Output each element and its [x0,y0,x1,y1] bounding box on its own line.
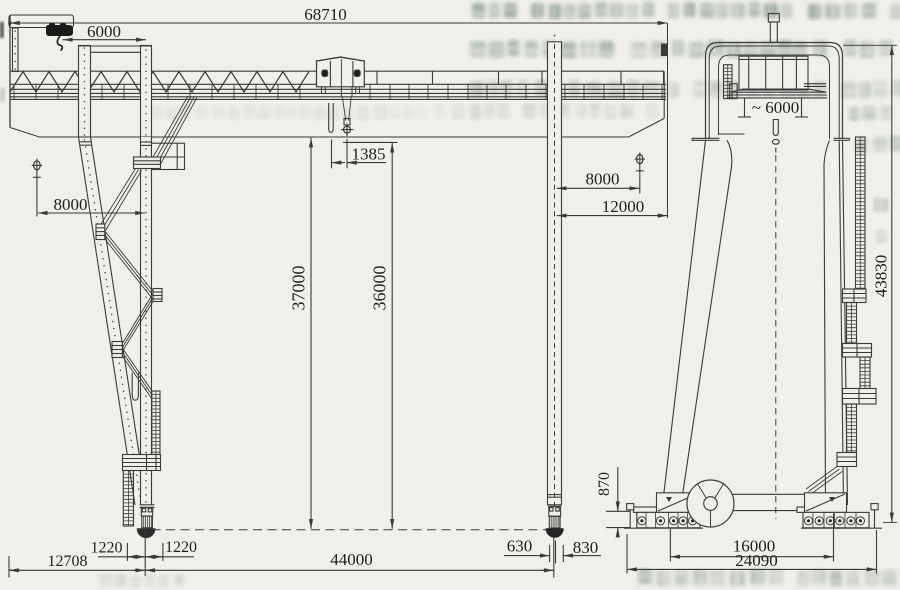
svg-text:12708: 12708 [48,553,88,570]
svg-text:6000: 6000 [87,22,121,41]
svg-text:~ 6000: ~ 6000 [752,98,799,117]
svg-text:36000: 36000 [370,266,390,311]
svg-text:43830: 43830 [872,255,891,298]
svg-text:37000: 37000 [289,266,309,311]
svg-text:24090: 24090 [735,551,778,570]
svg-text:1385: 1385 [352,145,386,164]
svg-text:8000: 8000 [54,195,88,214]
svg-text:630: 630 [507,536,533,555]
svg-text:12000: 12000 [602,197,645,216]
svg-text:8000: 8000 [586,170,620,189]
svg-text:44000: 44000 [330,550,373,569]
svg-text:870: 870 [596,472,613,496]
svg-text:830: 830 [573,538,599,557]
svg-text:68710: 68710 [304,5,347,24]
svg-text:1220: 1220 [91,539,123,556]
svg-text:1220: 1220 [165,539,197,556]
